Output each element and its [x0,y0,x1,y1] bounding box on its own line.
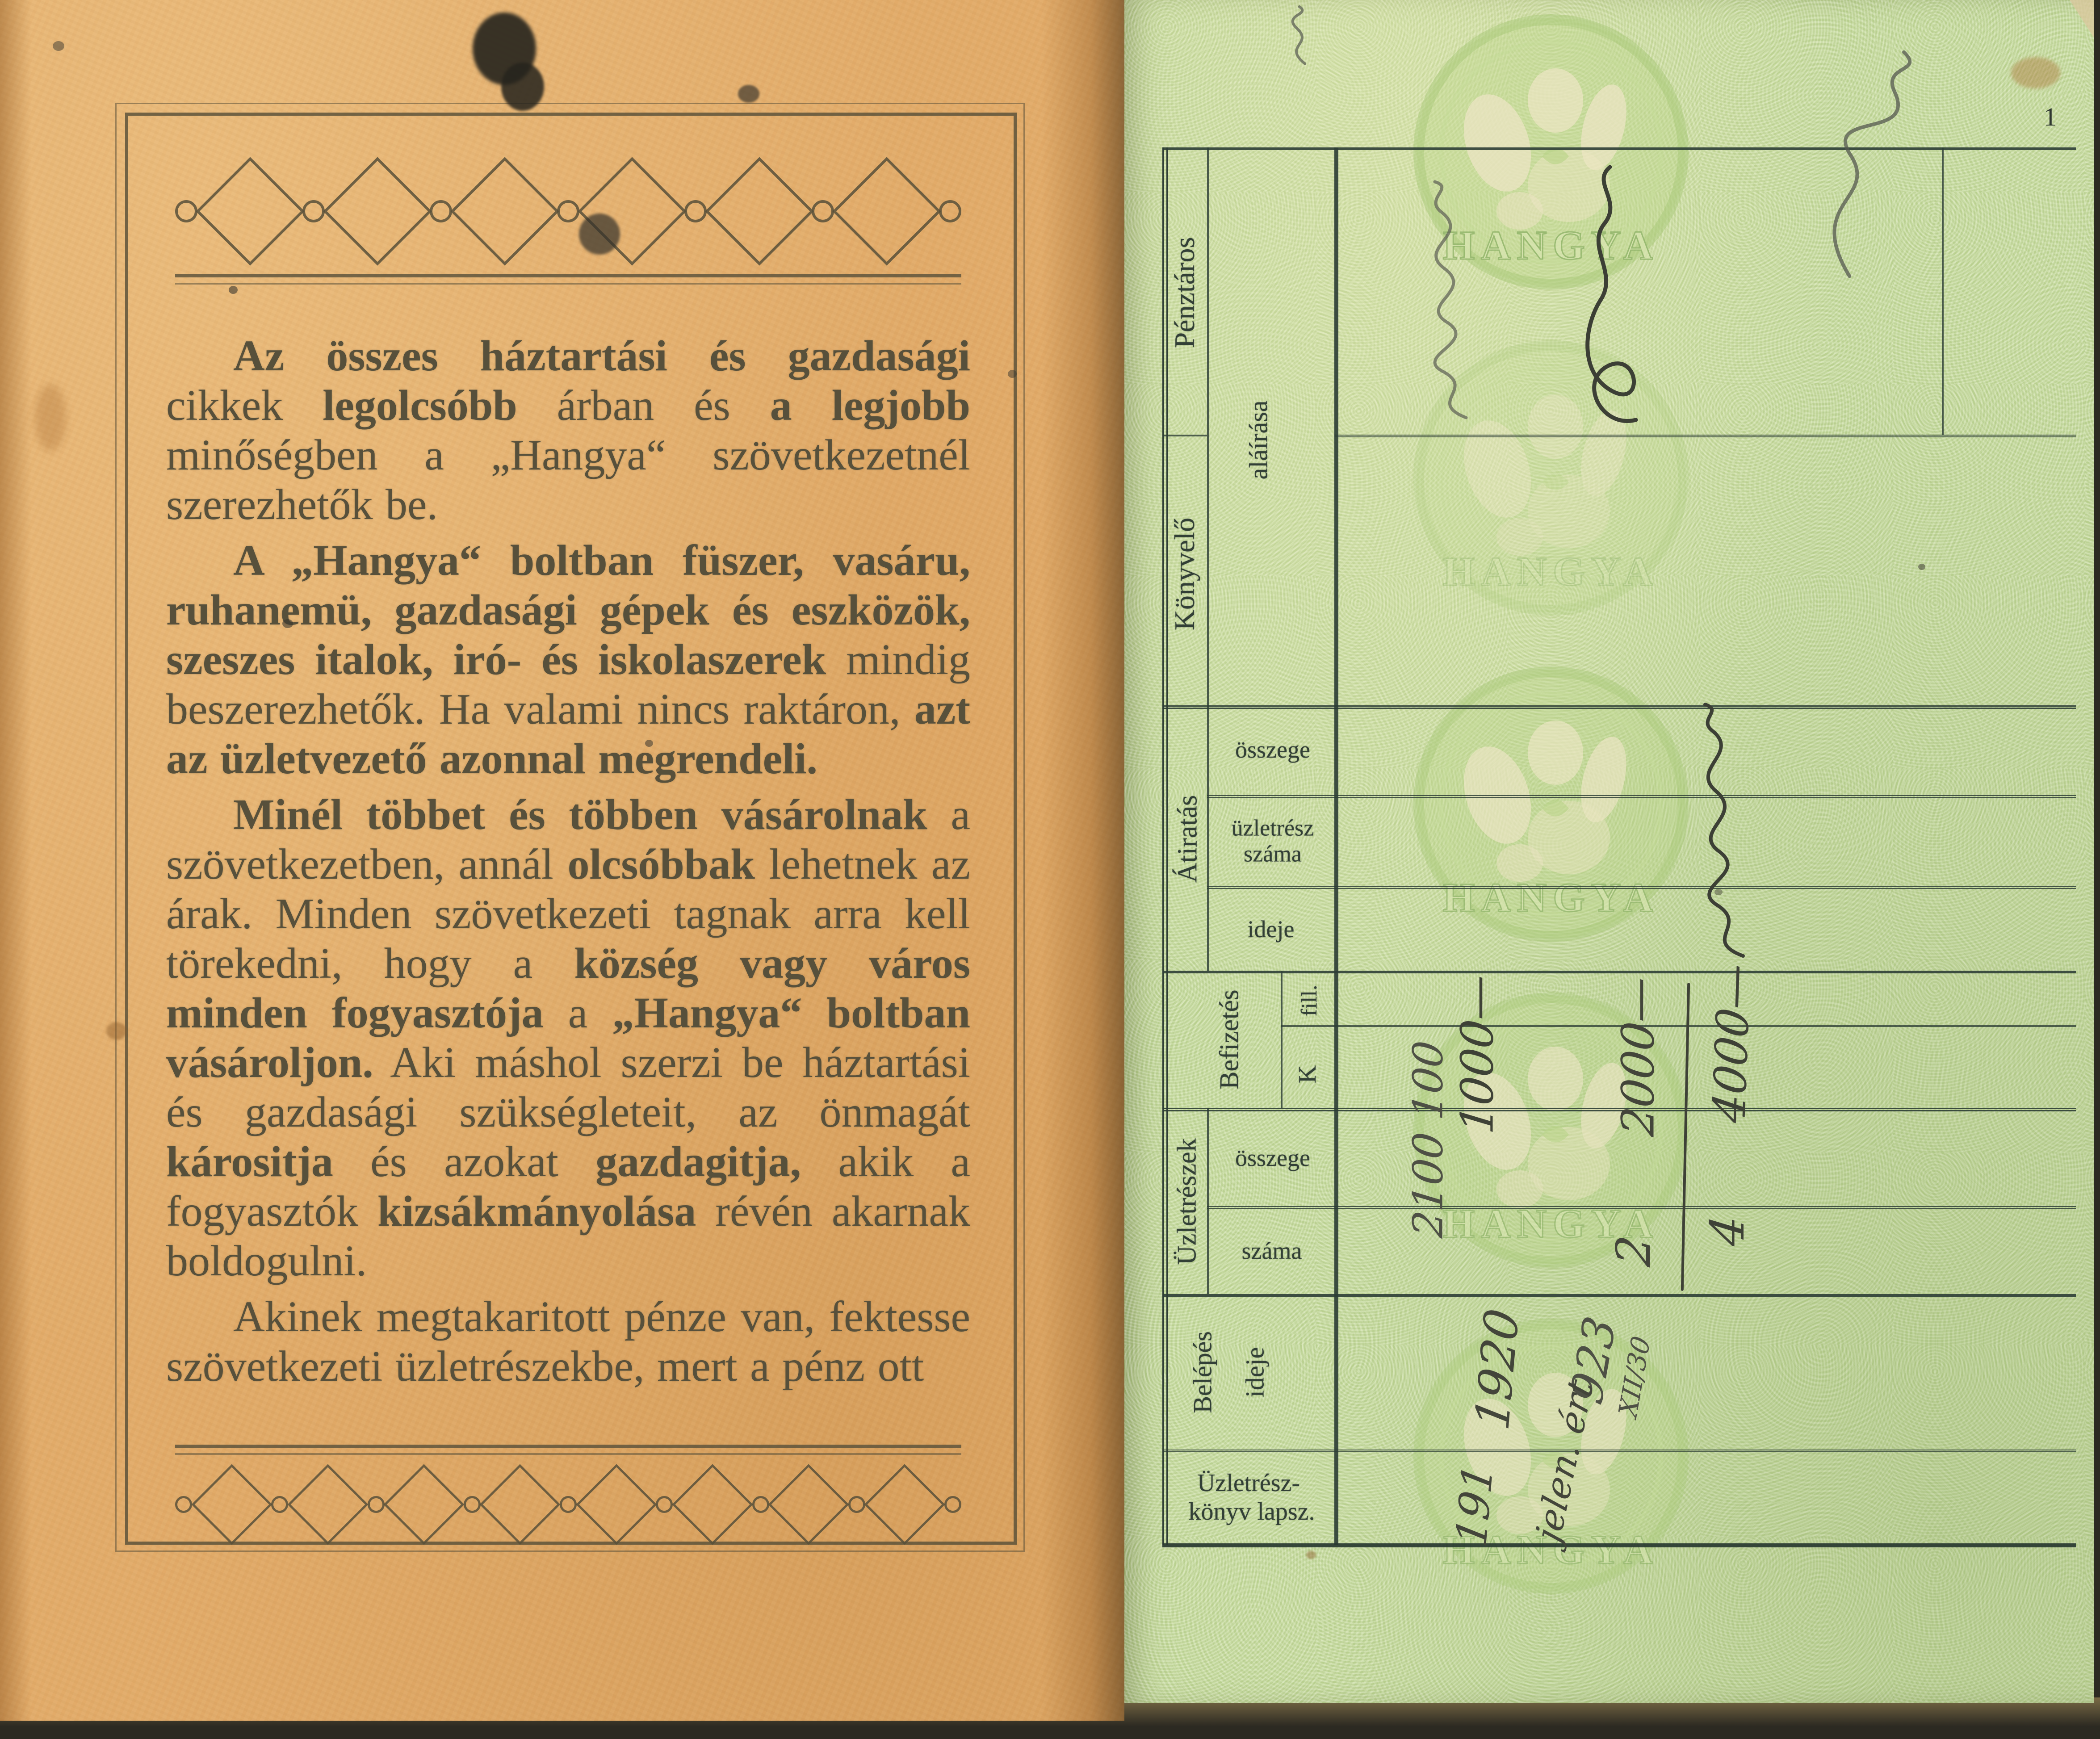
table-line [1162,435,1207,436]
foxing-stain [1306,1551,1316,1559]
ink-stain [738,85,759,103]
diamond-chain-ornament-top [175,155,961,267]
signature-ink-1 [1573,156,1649,433]
chain-diamond [832,157,941,265]
table-header-divider [1334,147,1338,1545]
chain-diamond [450,157,559,265]
handwriting-entry: 4 [1700,1213,1755,1249]
table-line [1207,1108,1209,1294]
chain-diamond [480,1464,561,1545]
foxing-stain [2011,57,2060,88]
ink-speck [1008,370,1017,378]
scanned-booklet-spread: Az összes háztartási és gazdasági cikkek… [0,0,2100,1739]
table-line [1207,1206,2076,1212]
col-header-befizetes: Befizetés [1214,989,1245,1089]
table-line [1207,795,2076,801]
col-header-belepes: Belépés [1188,1331,1218,1413]
chain-link-circle [368,1496,385,1513]
handwriting-entry: 191 [1447,1460,1503,1550]
handwriting-entry: 2000— [1612,975,1664,1139]
chain-link-circle [464,1496,481,1513]
col-header-belepes-ideje: ideje [1240,1347,1270,1398]
table-line [1162,971,2076,973]
paragraph: Az összes háztartási és gazdasági cikkek… [166,331,970,530]
page-number: 1 [2044,102,2057,132]
chain-link-circle [175,1496,192,1513]
paragraph: Akinek megtakaritott pénze van, fektesse… [166,1292,970,1391]
double-rule-bottom [175,1445,961,1455]
subheader-atiratas-uzletresz: üzletrész [1232,815,1314,842]
table-line [1334,435,2076,441]
ink-speck [229,286,238,294]
ink-speck [645,740,653,747]
table-line [1162,1450,2076,1456]
chain-diamond [287,1464,368,1545]
chain-link-circle [944,1496,961,1513]
table-line [1281,971,1283,1108]
chain-diamond [323,157,432,265]
handwriting-entry: 1920 [1465,1304,1530,1434]
page-edge-shading [0,0,31,1721]
chain-link-circle [302,200,325,222]
table-line [1162,705,2076,713]
chain-link-circle [752,1496,769,1513]
diamond-chain-ornament-bottom [175,1466,961,1543]
double-rule-top [175,274,961,285]
subheader-uzletreszek-osszege: összege [1235,1144,1310,1172]
col-header-konyvelo: Könyvelő [1168,518,1201,630]
chain-diamond [705,157,813,265]
col-header-lapsz-line2: könyv lapsz. [1188,1497,1315,1526]
foxing-stain [35,384,66,451]
table-line [1162,1294,2076,1297]
left-page: Az összes háztartási és gazdasági cikkek… [0,0,1124,1721]
subheader-atiratas-ideje: ideje [1248,915,1295,943]
col-header-uzletreszek: Üzletrészek [1172,1138,1203,1265]
table-top-border [1162,147,2076,150]
table-line [1207,147,1209,971]
chain-link-circle [656,1496,673,1513]
handwriting-entry: 2100 100 [1404,1039,1452,1240]
right-page: HANGYA HANGYA HANGYA HANGYA [1124,0,2094,1703]
col-header-lapsz-line1: Üzletrész- [1197,1469,1300,1497]
chain-diamond [384,1464,465,1545]
subheader-k: K [1293,1065,1322,1083]
paragraph: Minél többet és többen vásárolnak a szöv… [166,790,970,1286]
table-left-border [1162,147,1168,1545]
col-header-alairasa: aláírása [1244,400,1274,479]
table-line [1207,886,2076,893]
signature-ink-2 [1689,699,1756,967]
chain-diamond [672,1464,753,1545]
chain-link-circle [812,200,834,222]
subheader-uzletreszek-szama: száma [1242,1237,1302,1265]
chain-diamond [196,157,304,265]
chain-link-circle [939,200,961,222]
paragraph: A „Hangya“ boltban füszer, vasáru, ruhan… [166,536,970,784]
foxing-stain [106,1022,127,1040]
chain-link-circle [271,1496,288,1513]
ink-stain [579,214,620,255]
chain-link-circle [557,200,579,222]
chain-diamond [864,1464,945,1545]
ink-speck [282,619,293,628]
subheader-fill: fill. [1296,985,1322,1017]
col-header-penztaros: Pénztáros [1168,237,1201,348]
subheader-atiratas-osszege: összege [1235,736,1310,763]
table-line [1281,1025,2076,1027]
subheader-atiratas-szama: száma [1244,841,1302,867]
chain-diamond [191,1464,272,1545]
promotional-text-block: Az összes háztartási és gazdasági cikkek… [166,331,970,1398]
chain-link-circle [684,200,707,222]
chain-link-circle [848,1496,865,1513]
handwriting-entry: 2 [1606,1233,1661,1269]
ink-speck [1714,889,1723,895]
page-corner [2070,0,2094,38]
chain-diamond [576,1464,657,1545]
signature-pencil-1 [1417,176,1484,427]
chain-link-circle [430,200,452,222]
ink-stain [501,63,544,111]
table-line [1942,147,1944,435]
gutter-shadow [1041,0,1124,1721]
chain-diamond [768,1464,849,1545]
ink-speck [1918,564,1925,570]
chain-link-circle [175,200,197,222]
ink-speck [53,41,64,51]
handwriting-entry: 4000— [1703,960,1761,1126]
handwriting-entry: 1000— [1451,972,1504,1136]
table-bottom-border [1162,1543,2076,1547]
col-header-atiratas: Átiratás [1172,795,1204,883]
chain-link-circle [560,1496,577,1513]
